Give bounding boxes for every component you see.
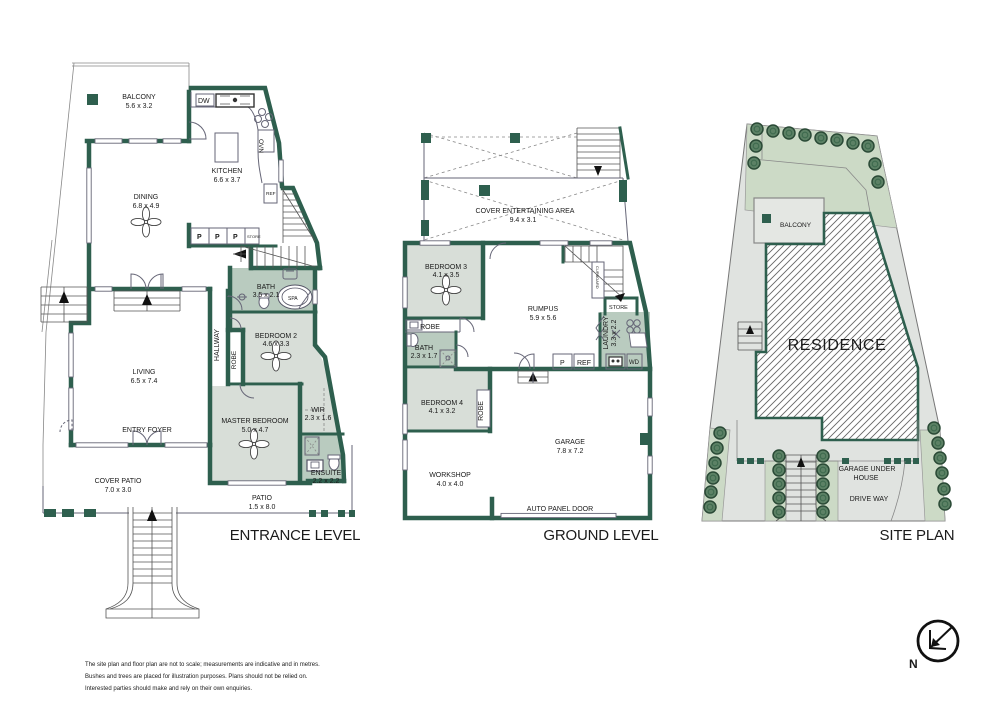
svg-text:5.9 x 5.6: 5.9 x 5.6 — [530, 315, 557, 322]
svg-text:Bushes and trees are placed fo: Bushes and trees are placed for illustra… — [85, 674, 308, 680]
svg-text:P: P — [560, 360, 565, 367]
svg-text:PATIO: PATIO — [252, 495, 273, 502]
svg-text:LAUNDRY: LAUNDRY — [603, 316, 610, 350]
svg-text:MASTER BEDROOM: MASTER BEDROOM — [221, 418, 288, 425]
svg-text:ROBE: ROBE — [420, 324, 440, 331]
svg-text:2.3 x 1.6: 2.3 x 1.6 — [305, 415, 332, 422]
svg-text:7.8 x 7.2: 7.8 x 7.2 — [557, 448, 584, 455]
svg-text:RESIDENCE: RESIDENCE — [788, 337, 887, 354]
svg-text:BEDROOM 2: BEDROOM 2 — [255, 333, 297, 340]
svg-text:SPA: SPA — [288, 296, 298, 302]
svg-text:ROBE: ROBE — [231, 350, 238, 369]
svg-text:STORE: STORE — [247, 234, 261, 239]
svg-text:4.6 x 3.3: 4.6 x 3.3 — [263, 341, 290, 348]
svg-text:Interested parties should make: Interested parties should make and rely … — [85, 686, 252, 692]
svg-text:COVER ENTERTAINING AREA: COVER ENTERTAINING AREA — [476, 208, 575, 215]
svg-text:ENSUITE: ENSUITE — [311, 470, 342, 477]
svg-text:WIR: WIR — [311, 407, 325, 414]
svg-text:ENTRANCE LEVEL: ENTRANCE LEVEL — [230, 527, 361, 544]
svg-text:3.5 x 2.1: 3.5 x 2.1 — [253, 292, 280, 299]
svg-text:GROUND LEVEL: GROUND LEVEL — [543, 527, 658, 544]
svg-text:4.1 x 3.5: 4.1 x 3.5 — [433, 272, 460, 279]
svg-text:5.0 x 4.7: 5.0 x 4.7 — [242, 427, 269, 434]
svg-text:4.0 x 4.0: 4.0 x 4.0 — [437, 481, 464, 488]
svg-text:P: P — [197, 234, 202, 241]
svg-text:BEDROOM 3: BEDROOM 3 — [425, 264, 467, 271]
svg-text:DINING: DINING — [134, 194, 159, 201]
svg-text:P: P — [215, 234, 220, 241]
svg-text:BALCONY: BALCONY — [122, 94, 156, 101]
svg-text:COVER PATIO: COVER PATIO — [95, 478, 142, 485]
svg-text:HOUSE: HOUSE — [854, 475, 879, 482]
svg-text:REF: REF — [577, 360, 591, 367]
svg-text:1.5 x 8.0: 1.5 x 8.0 — [249, 504, 276, 511]
svg-text:2.3 x 1.7: 2.3 x 1.7 — [411, 353, 438, 360]
svg-text:ROBE: ROBE — [478, 401, 485, 421]
svg-text:GARAGE UNDER: GARAGE UNDER — [839, 466, 896, 473]
svg-text:AUTO PANEL DOOR: AUTO PANEL DOOR — [527, 506, 593, 513]
svg-text:5.6 x 3.2: 5.6 x 3.2 — [126, 103, 153, 110]
svg-text:3.3 x 2.2: 3.3 x 2.2 — [611, 319, 618, 346]
svg-text:7.0 x 3.0: 7.0 x 3.0 — [105, 487, 132, 494]
svg-text:BEDROOM 4: BEDROOM 4 — [421, 400, 463, 407]
svg-text:WD: WD — [629, 360, 640, 366]
svg-text:2.2 x 2.2: 2.2 x 2.2 — [313, 478, 340, 485]
svg-text:OVN: OVN — [257, 139, 264, 153]
svg-text:P: P — [233, 234, 238, 241]
svg-text:ENTRY FOYER: ENTRY FOYER — [122, 427, 172, 434]
svg-text:DW: DW — [198, 98, 210, 105]
svg-text:REF: REF — [266, 191, 276, 197]
svg-text:9.4 x 3.1: 9.4 x 3.1 — [510, 217, 537, 224]
svg-text:The site plan and floor plan a: The site plan and floor plan are not to … — [85, 662, 320, 668]
svg-text:BATH: BATH — [415, 345, 433, 352]
svg-text:KITCHEN: KITCHEN — [212, 168, 243, 175]
svg-text:6.8 x 4.9: 6.8 x 4.9 — [133, 203, 160, 210]
svg-text:N: N — [909, 657, 918, 671]
svg-text:6.6 x 3.7: 6.6 x 3.7 — [214, 177, 241, 184]
svg-text:WORKSHOP: WORKSHOP — [429, 472, 471, 479]
svg-text:HALLWAY: HALLWAY — [214, 329, 221, 361]
svg-text:6.5 x 7.4: 6.5 x 7.4 — [131, 378, 158, 385]
svg-text:RUMPUS: RUMPUS — [528, 306, 559, 313]
svg-text:SITE PLAN: SITE PLAN — [880, 527, 955, 544]
svg-text:BALCONY: BALCONY — [780, 222, 812, 229]
svg-text:4.1 x 3.2: 4.1 x 3.2 — [429, 408, 456, 415]
svg-text:GARAGE: GARAGE — [555, 439, 585, 446]
svg-text:STORE: STORE — [609, 305, 628, 311]
svg-text:CUPBOARD: CUPBOARD — [595, 266, 600, 289]
svg-text:LIVING: LIVING — [133, 369, 156, 376]
svg-text:BATH: BATH — [257, 284, 275, 291]
svg-text:DRIVE WAY: DRIVE WAY — [850, 496, 889, 503]
